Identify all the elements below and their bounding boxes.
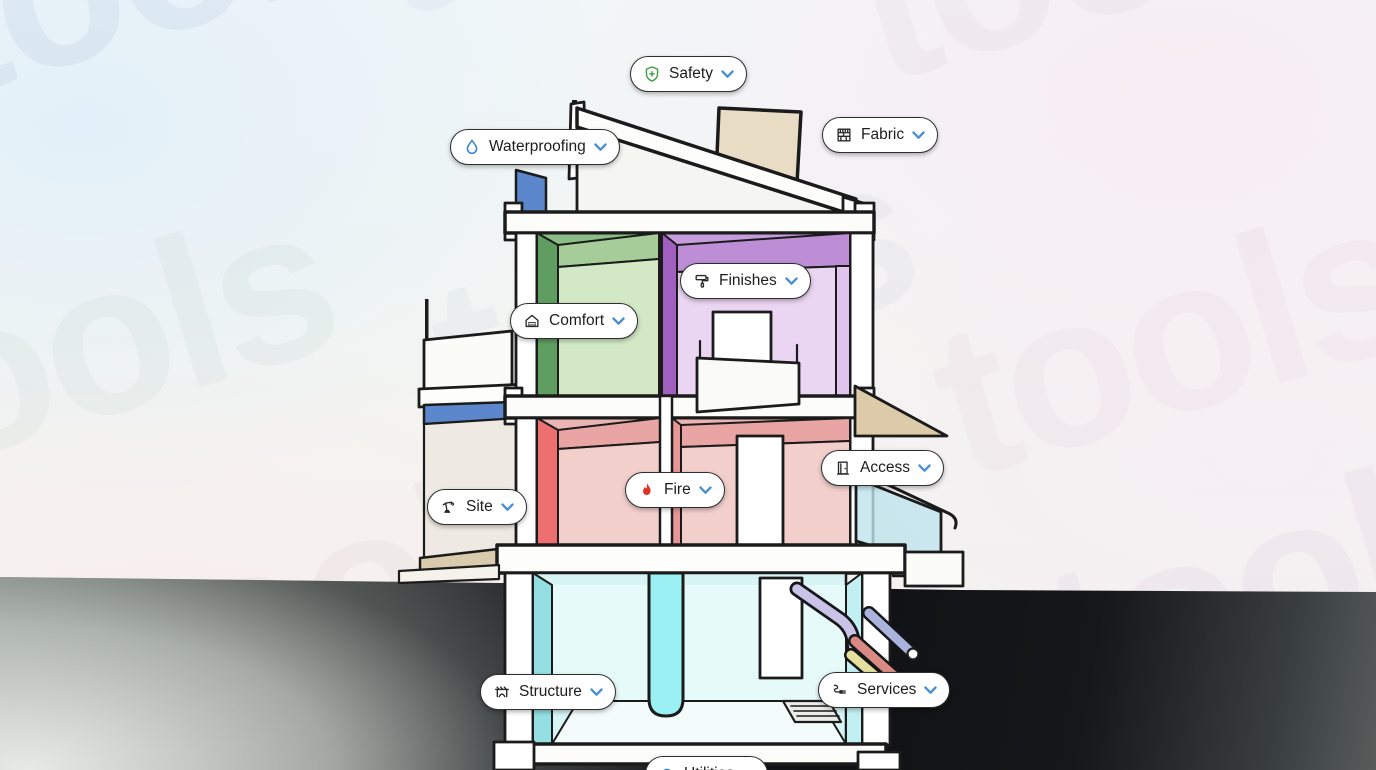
- category-button-waterproofing[interactable]: Waterproofing: [450, 129, 620, 165]
- chevron-down-icon: [590, 688, 603, 697]
- chevron-down-icon: [501, 503, 514, 512]
- category-label: Comfort: [549, 312, 604, 330]
- category-button-services[interactable]: Services: [818, 672, 950, 708]
- chevron-down-icon: [612, 317, 625, 326]
- category-label: Finishes: [719, 272, 777, 290]
- category-button-structure[interactable]: Structure: [480, 674, 616, 710]
- cable-plug-icon: [831, 681, 849, 699]
- basement-column: [649, 573, 683, 716]
- category-label: Fabric: [861, 126, 904, 144]
- category-label: Safety: [669, 65, 713, 83]
- building-cutaway-illustration: [0, 0, 1376, 770]
- upper-right-wall: [850, 233, 873, 396]
- category-button-safety[interactable]: Safety: [630, 56, 747, 92]
- flame-icon: [638, 481, 656, 499]
- wall-section-icon: [835, 126, 853, 144]
- category-label: Site: [466, 498, 493, 516]
- category-button-site[interactable]: Site: [427, 489, 527, 525]
- water-drop-icon: [463, 138, 481, 156]
- category-label: Fire: [664, 481, 691, 499]
- category-label: Waterproofing: [489, 138, 586, 156]
- door-icon: [834, 459, 852, 477]
- category-button-finishes[interactable]: Finishes: [680, 263, 811, 299]
- category-button-comfort[interactable]: Comfort: [510, 303, 638, 339]
- chevron-down-icon: [918, 464, 931, 473]
- stair-balustrade: [697, 358, 799, 412]
- shield-plus-icon: [643, 65, 661, 83]
- chevron-down-icon: [912, 131, 925, 140]
- category-label: Services: [857, 681, 916, 699]
- insulated-house-icon: [523, 312, 541, 330]
- chevron-down-icon: [594, 143, 607, 152]
- category-label: Access: [860, 459, 910, 477]
- category-button-fire[interactable]: Fire: [625, 472, 725, 508]
- crane-icon: [440, 498, 458, 516]
- chevron-down-icon: [785, 277, 798, 286]
- category-label: Structure: [519, 683, 582, 701]
- mid-door: [737, 436, 783, 545]
- basement: [505, 573, 890, 745]
- building-systems-explorer: tools tools™ tools tools tools tools™ to…: [0, 0, 1376, 770]
- category-button-fabric[interactable]: Fabric: [822, 117, 938, 153]
- category-button-utilities[interactable]: Utilities: [645, 756, 768, 770]
- paint-roller-icon: [693, 272, 711, 290]
- category-button-access[interactable]: Access: [821, 450, 944, 486]
- mid-partition-wall: [660, 396, 672, 545]
- chevron-down-icon: [924, 686, 937, 695]
- chevron-down-icon: [721, 70, 734, 79]
- category-label: Utilities: [684, 765, 734, 770]
- bridge-arch-icon: [493, 683, 511, 701]
- utilities-icon: [658, 765, 676, 770]
- mid-left-wall: [516, 418, 537, 545]
- chevron-down-icon: [699, 486, 712, 495]
